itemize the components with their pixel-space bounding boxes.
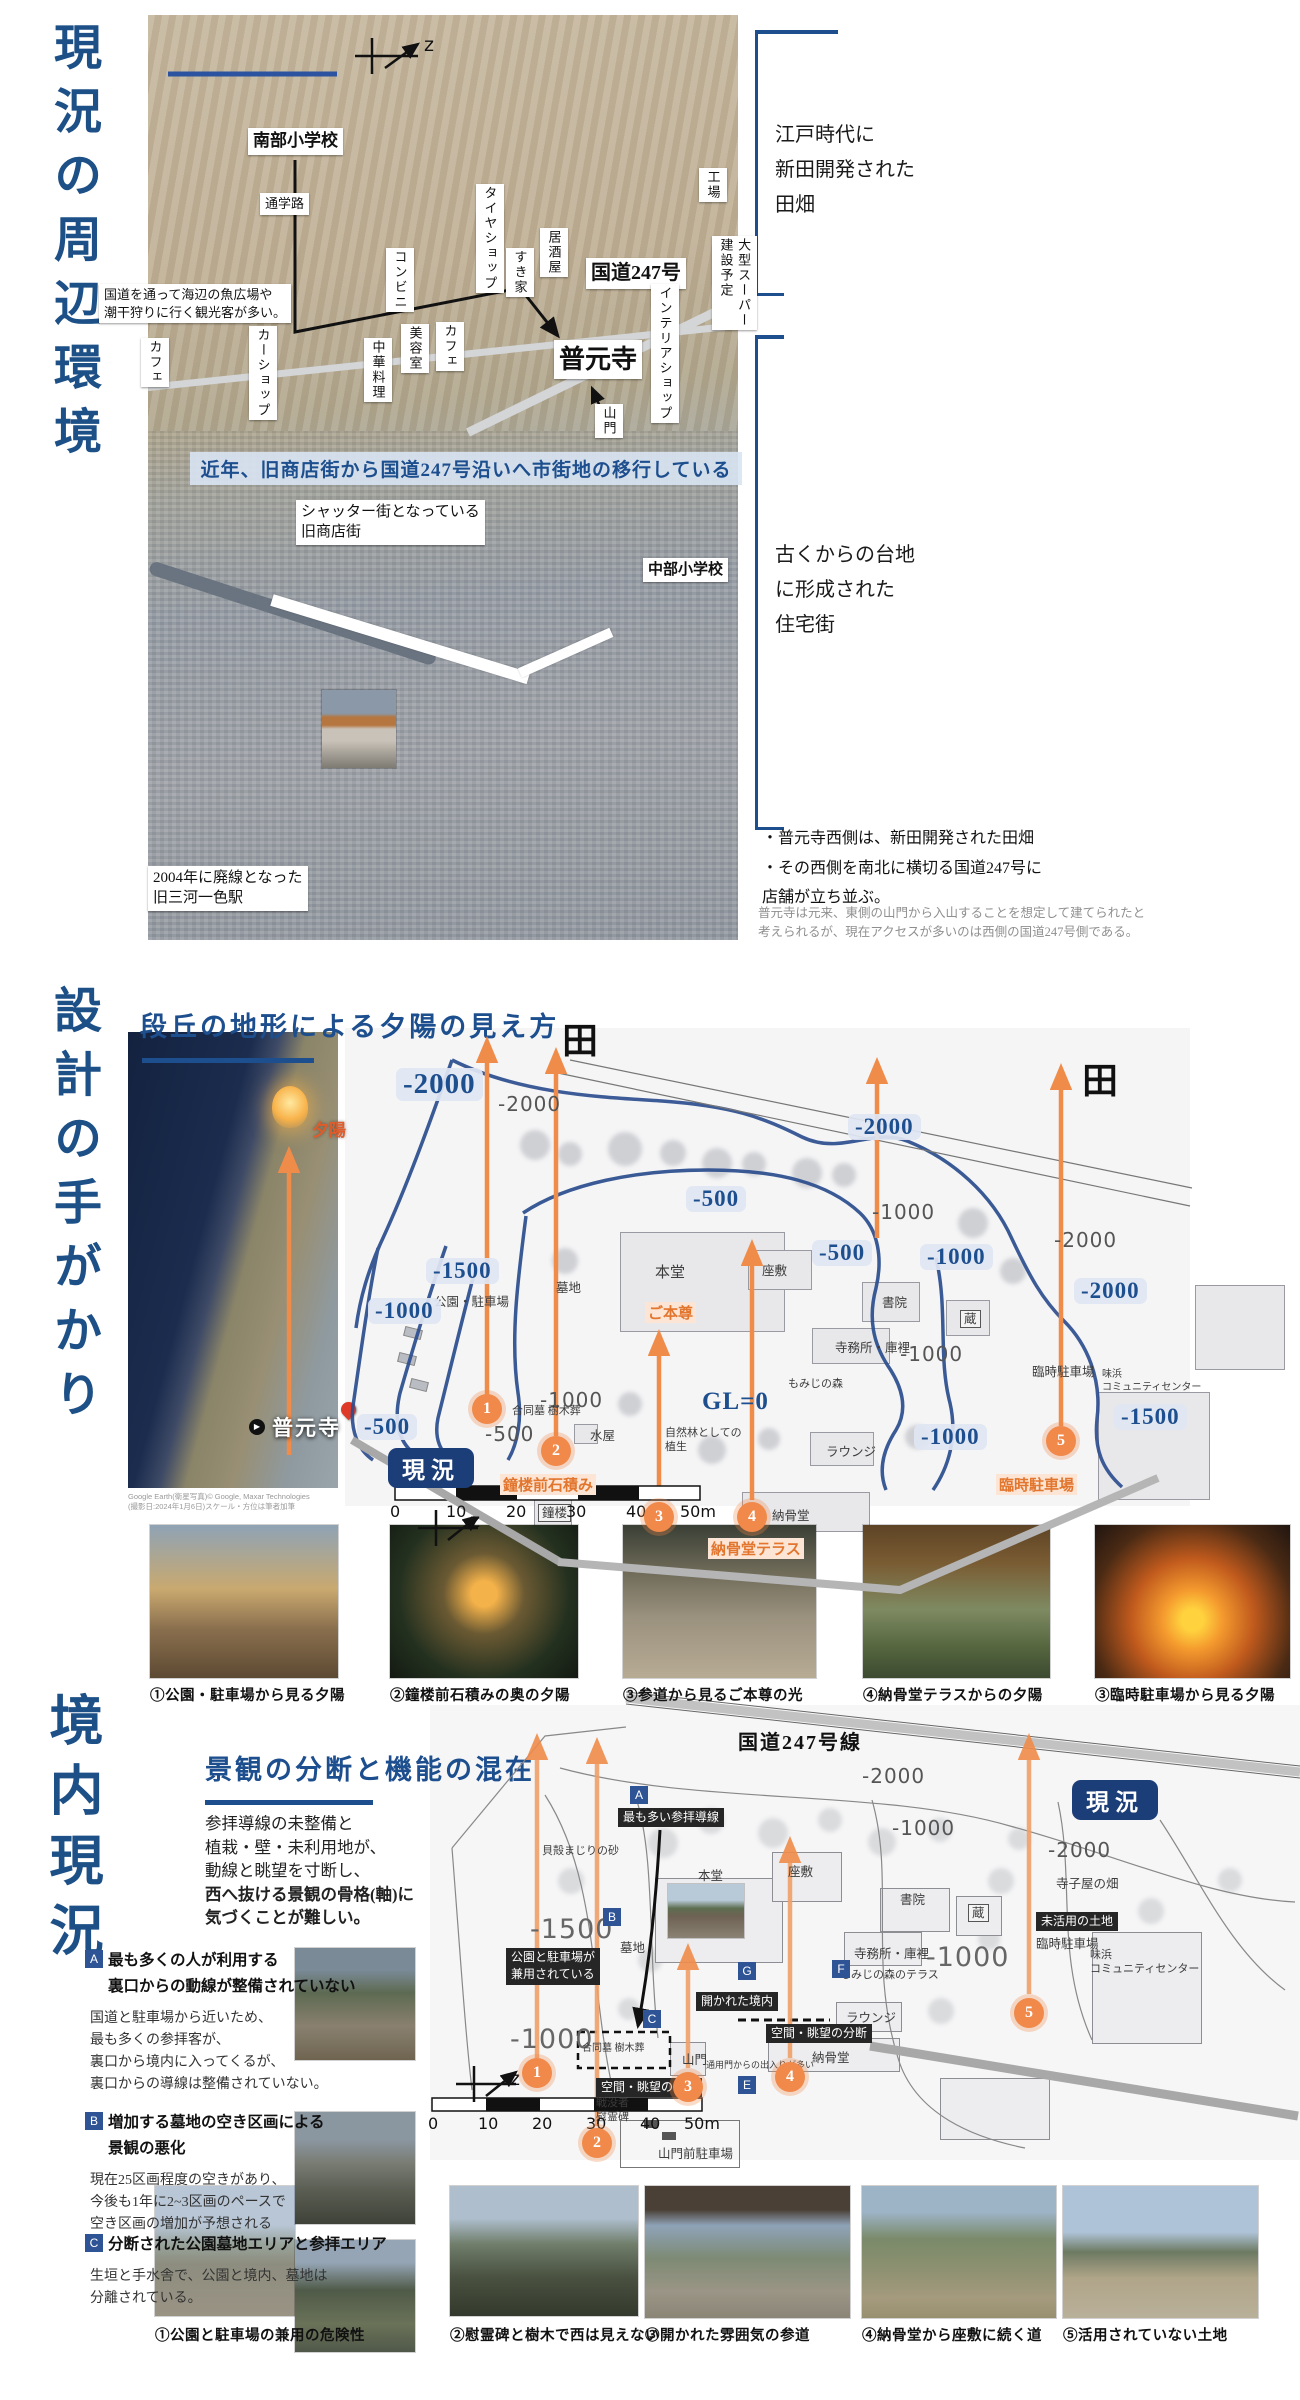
map-label: タイヤショップ — [476, 184, 504, 293]
section2-title: 設計の手がかり — [48, 985, 96, 1433]
tree-symbol — [558, 1142, 582, 1166]
scale-tick: 50m — [684, 2114, 720, 2133]
issue-title: 分断された公園墓地エリアと参拝エリア — [108, 2232, 387, 2258]
photo-caption: ②慰霊碑と樹木で西は見えない — [450, 2324, 660, 2345]
tree-symbol — [988, 1868, 1014, 1894]
ground-level-label: GL=0 — [702, 1388, 769, 1416]
contour-badge: -1000 — [920, 1244, 993, 1270]
area-label: 墓地 — [620, 1940, 645, 1956]
issue-body: 生垣と手水舎で、公園と境内、墓地は 分離されている。 — [90, 2266, 327, 2310]
bracket-icon — [755, 30, 771, 296]
area-label: 合同墓 樹木葬 — [582, 2042, 645, 2055]
issue-key-marker: B — [85, 2112, 103, 2130]
contour-label: -2000 — [1054, 1228, 1117, 1252]
design-board: 現況の周辺環境 近年、旧商店街から国道247号沿いへ市街地の移行している 江戸時… — [0, 0, 1300, 2400]
plateau-housing-note: 古くからの台地 に形成された 住宅街 — [775, 538, 915, 643]
viewpoint-marker: 2 — [541, 1436, 571, 1466]
tree-symbol — [552, 1248, 578, 1274]
area-label: 臨時駐車場 — [1032, 1364, 1095, 1380]
photo-open-approach — [645, 2186, 850, 2318]
area-label: 味浜 コミュニティセンター — [1102, 1368, 1201, 1394]
area-label: 山門 — [682, 2052, 707, 2068]
issue-body: 国道と駐車場から近いため、 最も多くの参拝客が、 裏口から境内に入ってくるが、 … — [90, 2008, 328, 2096]
area-label: 本堂 — [698, 1868, 723, 1884]
photo-shutter-street-inset — [322, 690, 396, 768]
issue-badge: 最も多い参拝導線 — [618, 1808, 724, 1827]
photo-caption: ③臨時駐車場から見る夕陽 — [1095, 1684, 1275, 1705]
tree-symbol — [742, 1152, 766, 1176]
issue-badge: 公園と駐車場が 兼用されている — [506, 1948, 600, 1985]
photo-caption: ③参道から見るご本尊の光 — [623, 1684, 803, 1705]
contour-badge: -500 — [686, 1186, 746, 1212]
map-label: 2004年に廃線となった 旧三河一色駅 — [148, 866, 308, 911]
area-label: 公園・駐車場 — [434, 1294, 509, 1310]
paragraph-line: 西へ抜ける景観の骨格(軸)に — [205, 1883, 414, 1907]
photo-terrace-sunset — [863, 1525, 1050, 1678]
edo-fields-note: 江戸時代に 新田開発された 田畑 — [775, 118, 915, 223]
scale-tick: 50m — [680, 1502, 716, 1521]
contour-badge: -500 — [812, 1240, 872, 1266]
scale-tick: 40 — [640, 2114, 660, 2133]
paragraph-line: 植栽・壁・未利用地が、 — [205, 1836, 414, 1860]
area-label: もみじの森のテラス — [840, 1968, 939, 1982]
contour-badge: -1500 — [426, 1258, 499, 1284]
photo-caption: ②鐘楼前石積みの奥の夕陽 — [390, 1684, 570, 1705]
scale-tick: 30 — [566, 1502, 586, 1521]
issue-badge: 開かれた境内 — [696, 1992, 778, 2011]
issue-marker: G — [738, 1962, 756, 1980]
contour-label: -2000 — [498, 1092, 561, 1116]
area-label: 寺子屋の畑 — [1056, 1876, 1119, 1892]
contour-label: -500 — [485, 1422, 534, 1446]
viewpoint-marker: 1 — [472, 1394, 502, 1424]
north-arrow-label: z — [510, 2068, 520, 2090]
area-label: もみじの森 — [788, 1377, 843, 1391]
contour-label: -2000 — [862, 1764, 925, 1788]
tree-symbol — [818, 1808, 842, 1832]
photo-caption: ③開かれた雰囲気の参道 — [645, 2324, 810, 2345]
tree-symbol — [1000, 1258, 1026, 1284]
contour-badge: -1000 — [368, 1298, 441, 1324]
paragraph-line: 参拝導線の未整備と — [205, 1812, 414, 1836]
issue-marker: C — [643, 2010, 661, 2028]
map-label: カフェ — [436, 322, 464, 371]
tree-symbol — [702, 1148, 732, 1178]
contour-label: -1000 — [892, 1816, 955, 1840]
contour-badge: -2000 — [396, 1068, 483, 1101]
issue-marker: E — [738, 2076, 756, 2094]
area-label: 寺務所・庫裡 — [835, 1340, 910, 1356]
tree-symbol — [648, 1828, 678, 1858]
area-label: 寺務所・庫裡 — [854, 1946, 929, 1962]
paragraph-line: 動線と眺望を寸断し、 — [205, 1859, 414, 1883]
section3-heading: 景観の分断と機能の混在 — [205, 1748, 535, 1787]
heading-underline — [205, 1800, 373, 1805]
contour-badge: -1500 — [1114, 1404, 1187, 1430]
tree-symbol — [558, 1868, 584, 1894]
contour-label: -2000 — [1048, 1838, 1111, 1862]
issue-key-marker: C — [85, 2234, 103, 2252]
tree-symbol — [618, 1392, 642, 1416]
area-label: 合同墓 樹木葬 — [512, 1404, 581, 1418]
tree-symbol — [618, 1998, 640, 2020]
north-arrow-label: z — [424, 34, 434, 56]
viewpoint-marker: 2 — [582, 2128, 612, 2158]
context-bullets: ・普元寺西側は、新田開発された田畑 ・その西側を南北に横切る国道247号に 店舗… — [762, 824, 1042, 913]
issue-key-marker: A — [85, 1950, 103, 1968]
area-label: 書院 — [900, 1892, 925, 1908]
map-label: 居酒屋 — [540, 228, 568, 277]
paragraph-line: 気づくことが難しい。 — [205, 1906, 414, 1930]
contour-label: -1500 — [530, 1914, 613, 1945]
transition-banner: 近年、旧商店街から国道247号沿いへ市街地の移行している — [190, 452, 742, 485]
photo-parking-sunset — [1095, 1525, 1290, 1678]
tree-symbol — [520, 1130, 550, 1160]
tree-symbol — [758, 1818, 788, 1848]
scale-tick: 10 — [446, 1502, 466, 1521]
photo-sunset-from-park — [150, 1525, 338, 1678]
viewpoint-marker: 3 — [673, 2072, 703, 2102]
scale-tick: 20 — [506, 1502, 526, 1521]
tree-symbol — [1008, 1828, 1030, 1850]
feature-label: 納骨堂テラス — [708, 1538, 804, 1559]
tree-symbol — [832, 1163, 856, 1187]
issue-badge: 空間・眺望の分断 — [766, 2024, 872, 2043]
map-credit: (撮影日:2024年1月6日)スケール・方位は筆者加筆 — [128, 1501, 408, 1512]
building-footprint — [1195, 1285, 1285, 1370]
building-footprint — [940, 2078, 1050, 2140]
area-label: 自然林としての 植生 — [665, 1426, 742, 1455]
photo-unused-land — [1063, 2186, 1258, 2318]
photo-monument-trees — [450, 2186, 638, 2316]
feature-label: 臨時駐車場 — [996, 1474, 1077, 1495]
issue-badge: 未活用の土地 — [1036, 1912, 1118, 1931]
map-label: 中華料理 — [364, 338, 392, 402]
temple-name-label: 普元寺 — [272, 1412, 341, 1442]
section1-title: 現況の周辺環境 — [48, 22, 96, 470]
tree-symbol — [1138, 1898, 1164, 1924]
photo-ossuary-path — [862, 2186, 1056, 2318]
photo-main-hall-inset — [668, 1884, 744, 1938]
map-label: インテリアショップ — [651, 284, 679, 423]
tree-symbol — [1218, 1868, 1242, 1892]
rice-field-label: 田 — [562, 1012, 598, 1064]
heading-underline — [142, 1058, 314, 1063]
map-label: 国道を通って海辺の魚広場や 潮干狩りに行く観光客が多い。 — [99, 284, 291, 323]
area-label: 味浜 コミュニティセンター — [1090, 1948, 1199, 1977]
area-label: 納骨堂 — [772, 1508, 810, 1524]
issue-marker: A — [630, 1786, 648, 1804]
viewpoint-marker: 3 — [644, 1502, 674, 1532]
sunset-sun-icon — [272, 1086, 308, 1128]
map-label: 普元寺 — [554, 340, 642, 379]
section3-title: 境内現況 — [44, 1692, 98, 1972]
viewpoint-marker: 4 — [775, 2062, 805, 2092]
issue-title: 最も多くの人が利用する 裏口からの動線が整備されていない — [108, 1948, 356, 2000]
feature-label: ご本尊 — [645, 1302, 696, 1323]
section3-paragraph: 参拝導線の未整備と植栽・壁・未利用地が、動線と眺望を寸断し、西へ抜ける景観の骨格… — [205, 1812, 414, 1930]
area-label: 蔵 — [968, 1904, 989, 1922]
issue-body: 現在25区画程度の空きがあり、 今後も1年に2~3区画のペースで 空き区画の増加… — [90, 2170, 286, 2236]
map-label: シャッター街となっている 旧商店街 — [296, 500, 485, 545]
tree-symbol — [958, 1208, 988, 1238]
area-label: 墓地 — [556, 1280, 581, 1296]
viewpoint-marker: 4 — [737, 1502, 767, 1532]
photo-caption: ④納骨堂テラスからの夕陽 — [863, 1684, 1043, 1705]
north-arrow-label: z — [470, 1510, 480, 1532]
contour-label: -1000 — [872, 1200, 935, 1224]
photo-caption: ①公園と駐車場の兼用の危険性 — [155, 2324, 365, 2345]
rice-field-label: 田 — [1082, 1052, 1118, 1104]
issue-marker: F — [832, 1960, 850, 1978]
contour-badge: -1000 — [914, 1424, 987, 1450]
map-label: 山門 — [595, 404, 623, 438]
map-label: すき家 — [506, 248, 534, 297]
tree-symbol — [792, 1158, 822, 1188]
scale-tick: 20 — [532, 2114, 552, 2133]
area-label: 貝殻まじりの砂 — [542, 1844, 619, 1858]
issue-marker: B — [603, 1908, 621, 1926]
tree-symbol — [660, 1140, 686, 1166]
photo-caption: ④納骨堂から座敷に続く道 — [862, 2324, 1042, 2345]
map-label: 工場 — [699, 168, 727, 202]
photo-caption: ⑤活用されていない土地 — [1063, 2324, 1228, 2345]
feature-label: 鐘楼前石積み — [500, 1474, 596, 1495]
context-footnote: 普元寺は元来、東側の山門から入山することを想定して建てられたと 考えられるが、現… — [758, 904, 1145, 943]
status-badge: 現況 — [388, 1448, 474, 1488]
map-label: コンビニ — [386, 248, 414, 312]
contour-badge: -2000 — [1074, 1278, 1147, 1304]
area-label: 座敷 — [762, 1263, 787, 1279]
area-label: 本堂 — [655, 1264, 685, 1284]
status-badge: 現況 — [1072, 1780, 1158, 1820]
section2-heading: 段丘の地形による夕陽の見え方 — [140, 1005, 559, 1044]
map-label: 南部小学校 — [248, 128, 343, 155]
contour-label: -1000 — [510, 2024, 593, 2055]
area-label: 書院 — [882, 1295, 907, 1311]
map-label: カフェ — [141, 338, 169, 387]
contour-badge: -2000 — [848, 1114, 921, 1140]
scale-tick: 10 — [478, 2114, 498, 2133]
map-label: 美容室 — [401, 324, 429, 373]
play-icon: ▶ — [249, 1419, 265, 1435]
bracket-icon — [755, 335, 771, 830]
area-label: 座敷 — [788, 1864, 813, 1880]
route247-label: 国道247号線 — [738, 1726, 862, 1755]
scale-tick: 0 — [428, 2114, 438, 2133]
tree-symbol — [928, 1998, 954, 2024]
tree-symbol — [758, 1428, 780, 1450]
viewpoint-marker: 5 — [1014, 1998, 1044, 2028]
issue-title: 増加する墓地の空き区画による 景観の悪化 — [108, 2110, 325, 2162]
area-label: 納骨堂 — [812, 2050, 850, 2066]
tree-symbol — [608, 1132, 642, 1166]
area-label: 水屋 — [590, 1428, 615, 1444]
area-label: 蔵 — [960, 1310, 981, 1328]
map-label: 中部小学校 — [643, 558, 728, 582]
area-label: 山門前駐車場 — [658, 2146, 733, 2162]
viewpoint-marker: 1 — [522, 2058, 552, 2088]
photo-caption: ①公園・駐車場から見る夕陽 — [150, 1684, 345, 1705]
map-label: 通学路 — [260, 193, 309, 215]
map-label: 大型スーパー 建設予定 — [712, 236, 757, 330]
sunset-label: 夕陽 — [312, 1116, 346, 1141]
photo-sunset-behind-stonewall — [390, 1525, 578, 1678]
area-label: ラウンジ — [826, 1444, 876, 1460]
viewpoint-marker: 5 — [1046, 1426, 1076, 1456]
map-label: カーショップ — [249, 326, 277, 420]
contour-badge: -500 — [357, 1414, 417, 1440]
